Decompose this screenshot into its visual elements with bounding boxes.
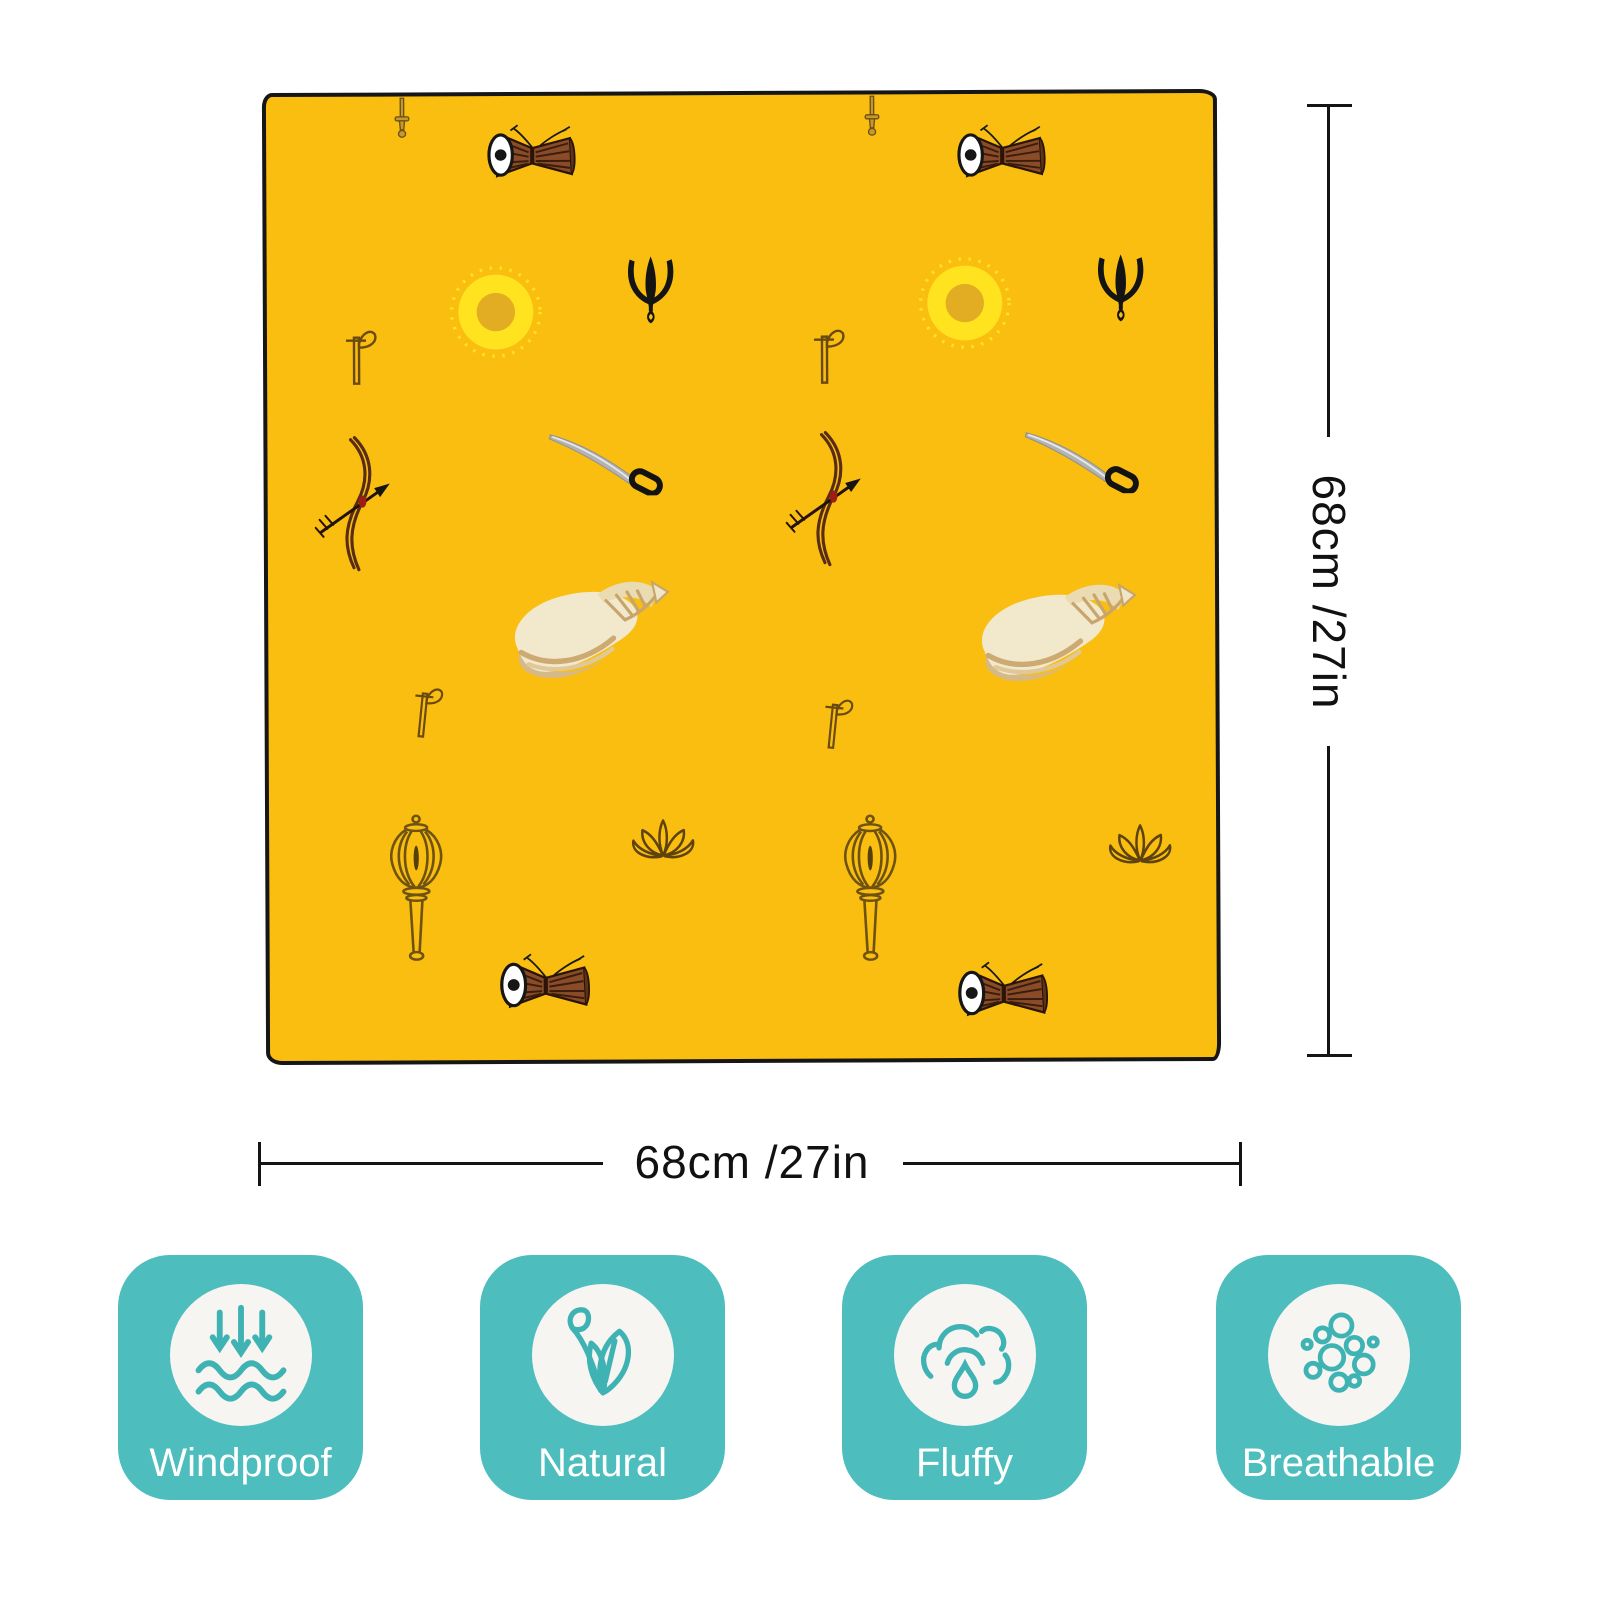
- conch-icon: [970, 572, 1139, 693]
- gada-icon: [376, 812, 457, 964]
- axe-icon: [404, 683, 445, 742]
- axe-icon: [814, 694, 855, 753]
- natural-leaf-icon: [532, 1284, 674, 1426]
- feature-label-natural: Natural: [480, 1441, 725, 1486]
- conch-icon: [503, 569, 672, 690]
- axe-icon: [338, 328, 378, 388]
- bandana-product: [262, 89, 1221, 1065]
- height-dim-segment-top: [1327, 106, 1330, 437]
- lotus-icon: [1102, 820, 1178, 874]
- product-image: 68cm /27in 68cm /27in Windpr: [0, 0, 1600, 1600]
- damaru-icon: [948, 120, 1056, 190]
- feature-label-breathable: Breathable: [1216, 1441, 1461, 1486]
- height-dim-cap-bottom: [1307, 1054, 1352, 1057]
- trishul-icon: [623, 254, 679, 328]
- dagger-icon: [391, 97, 413, 139]
- height-dimension-label: 68cm /27in: [1302, 474, 1356, 709]
- damaru-icon: [478, 120, 586, 190]
- feature-badge-fluffy: Fluffy: [842, 1255, 1087, 1500]
- damaru-icon: [491, 949, 601, 1021]
- windproof-icon: [170, 1284, 312, 1426]
- feature-badge-breathable: Breathable: [1216, 1255, 1461, 1500]
- height-dim-segment-bottom: [1327, 746, 1330, 1056]
- fluffy-cloud-droplet-icon: [894, 1284, 1036, 1426]
- feature-badge-natural: Natural: [480, 1255, 725, 1500]
- width-dim-segment-right: [903, 1162, 1241, 1165]
- feature-badge-windproof: Windproof: [118, 1255, 363, 1500]
- gada-icon: [830, 812, 911, 964]
- sword-icon: [1022, 427, 1140, 494]
- width-dim-segment-left: [260, 1162, 603, 1165]
- feature-label-windproof: Windproof: [118, 1441, 363, 1486]
- feature-label-fluffy: Fluffy: [842, 1441, 1087, 1486]
- lotus-icon: [625, 815, 701, 869]
- trishul-icon: [1093, 252, 1149, 326]
- axe-icon: [806, 327, 846, 387]
- damaru-icon: [949, 957, 1059, 1029]
- sword-icon: [546, 429, 664, 496]
- width-dimension-label: 68cm /27in: [634, 1135, 869, 1189]
- bow-icon: [782, 428, 871, 568]
- dagger-icon: [861, 95, 883, 137]
- width-dim-cap-right: [1239, 1142, 1242, 1186]
- sun-icon: [917, 255, 1013, 351]
- sun-icon: [448, 264, 544, 360]
- feature-badges: Windproof Natural: [0, 1255, 1600, 1500]
- bow-icon: [311, 433, 400, 573]
- breathable-bubbles-icon: [1268, 1284, 1410, 1426]
